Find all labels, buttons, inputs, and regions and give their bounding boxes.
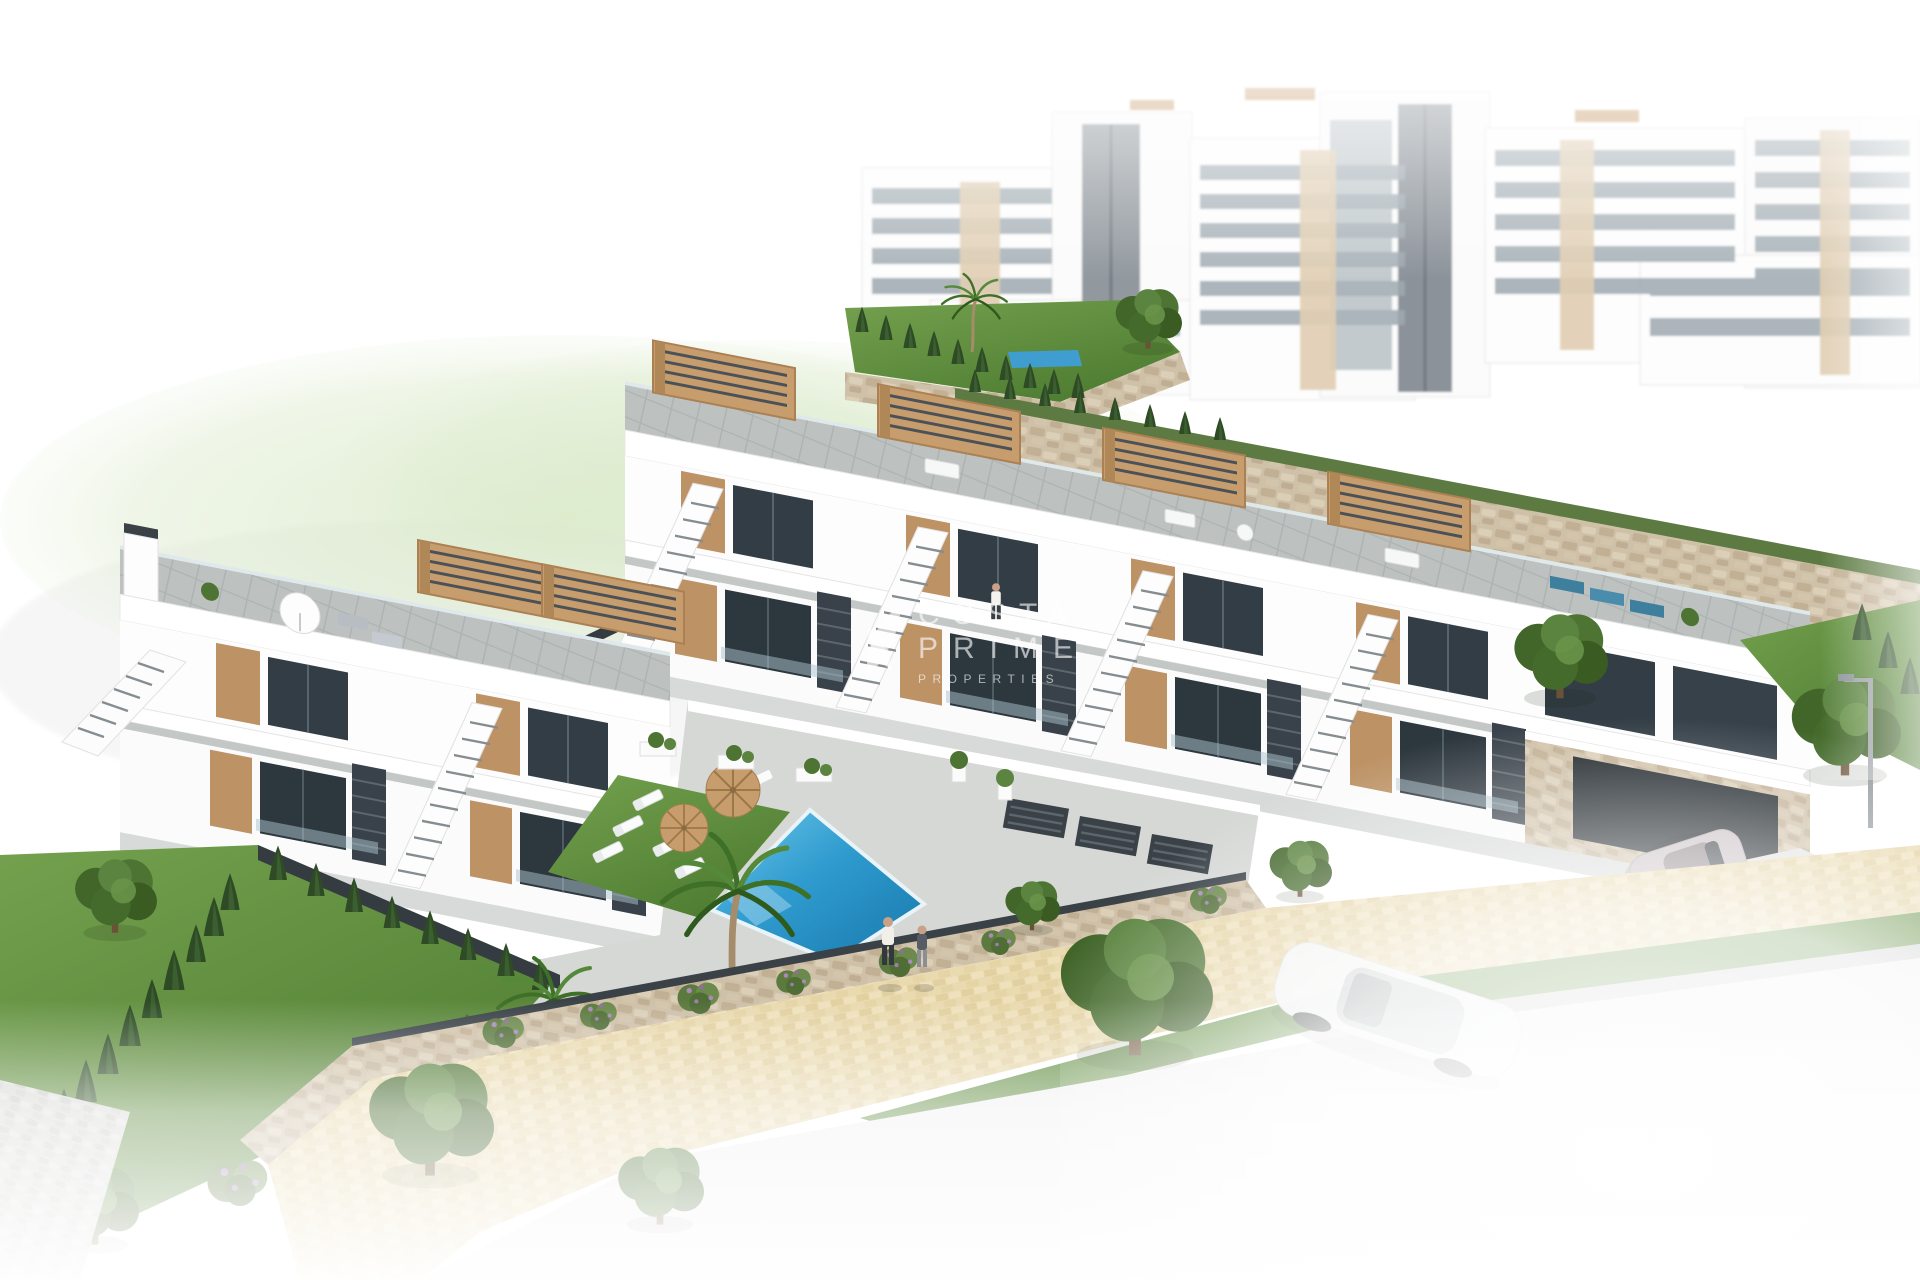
chimney (124, 533, 158, 602)
bottom-haze (0, 1000, 1920, 1280)
apartment-garden-pool (1008, 350, 1082, 368)
top-haze (0, 0, 1920, 280)
right-haze (1820, 0, 1920, 780)
straw-parasol (706, 763, 760, 817)
scene-illustration (0, 0, 1920, 1280)
render-canvas: COSTA PRIME PROPERTIES (0, 0, 1920, 1280)
straw-parasol (660, 804, 708, 852)
